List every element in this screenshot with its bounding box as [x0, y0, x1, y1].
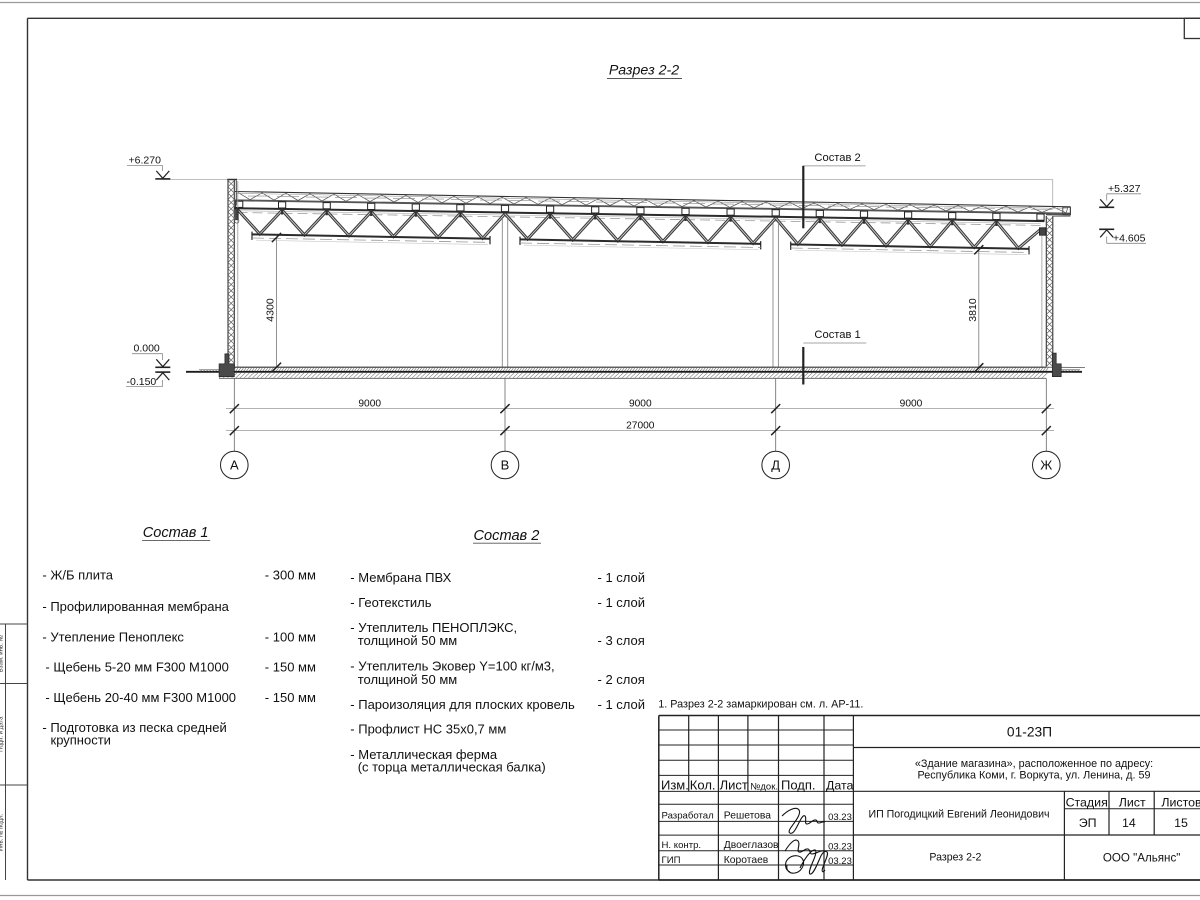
- svg-text:03.23: 03.23: [828, 841, 852, 852]
- svg-text:ИП Погодицкий Евгений Леонидов: ИП Погодицкий Евгений Леонидович: [868, 809, 1049, 821]
- svg-text:27000: 27000: [626, 420, 655, 431]
- svg-text:- Геотекстиль: - Геотекстиль: [350, 595, 431, 610]
- svg-text:4300: 4300: [265, 298, 277, 322]
- svg-text:Взам. инв. №: Взам. инв. №: [0, 635, 5, 672]
- svg-text:14: 14: [1122, 816, 1136, 830]
- svg-text:ООО "Альянс": ООО "Альянс": [1103, 851, 1181, 864]
- svg-text:Республика Коми, г. Воркута, у: Республика Коми, г. Воркута, ул. Ленина,…: [918, 769, 1151, 781]
- svg-text:Разрез 2-2: Разрез 2-2: [929, 851, 981, 863]
- svg-text:Состав 1: Состав 1: [814, 329, 860, 341]
- svg-text:15: 15: [1174, 816, 1188, 830]
- svg-text:0.000: 0.000: [134, 343, 160, 355]
- svg-text:- 1 слой: - 1 слой: [598, 570, 646, 585]
- svg-text:(с торца металлическая балка): (с торца металлическая балка): [358, 760, 546, 775]
- svg-text:толщиной 50 мм: толщиной 50 мм: [358, 633, 458, 648]
- svg-text:- 150 мм: - 150 мм: [265, 660, 316, 675]
- svg-text:Д: Д: [771, 458, 780, 473]
- svg-text:- 3 слоя: - 3 слоя: [598, 633, 645, 648]
- svg-text:Кол.: Кол.: [690, 778, 716, 793]
- svg-text:А: А: [230, 458, 239, 473]
- svg-text:+5.327: +5.327: [1108, 183, 1141, 195]
- svg-text:Состав 2: Состав 2: [474, 528, 540, 544]
- svg-text:Состав 2: Состав 2: [814, 152, 860, 164]
- svg-text:- Щебень 5-20 мм F300 М1000: - Щебень 5-20 мм F300 М1000: [45, 660, 228, 675]
- svg-text:- 150 мм: - 150 мм: [265, 690, 316, 705]
- svg-text:Инв. № подл.: Инв. № подл.: [0, 813, 5, 851]
- svg-text:Дата: Дата: [826, 779, 854, 793]
- svg-text:-0.150: -0.150: [127, 376, 157, 388]
- svg-text:- Профилированная мембрана: - Профилированная мембрана: [42, 599, 229, 614]
- svg-text:Разработал: Разработал: [662, 811, 714, 822]
- svg-text:- Профлист НС 35х0,7 мм: - Профлист НС 35х0,7 мм: [350, 721, 506, 736]
- svg-text:Стадия: Стадия: [1066, 795, 1108, 809]
- svg-text:9000: 9000: [358, 398, 381, 409]
- svg-text:9000: 9000: [629, 398, 652, 409]
- svg-text:- 2 слоя: - 2 слоя: [598, 672, 645, 687]
- svg-text:03.23: 03.23: [828, 812, 852, 823]
- svg-text:Ж: Ж: [1040, 458, 1052, 473]
- svg-text:Решетова: Решетова: [724, 811, 771, 822]
- svg-text:+4.605: +4.605: [1113, 232, 1146, 244]
- svg-text:- Утепление Пеноплекс: - Утепление Пеноплекс: [42, 629, 184, 644]
- svg-text:ЭП: ЭП: [1079, 816, 1097, 830]
- svg-text:Листов: Листов: [1161, 795, 1200, 809]
- svg-text:Разрез 2-2: Разрез 2-2: [609, 63, 679, 79]
- svg-text:1. Разрез 2-2 замаркирован см.: 1. Разрез 2-2 замаркирован см. л. АР-11.: [658, 699, 863, 711]
- svg-text:- Ж/Б плита: - Ж/Б плита: [42, 568, 113, 583]
- svg-text:9000: 9000: [900, 398, 923, 409]
- svg-text:Изм.: Изм.: [661, 778, 689, 793]
- svg-text:№док.: №док.: [750, 781, 778, 792]
- svg-text:толщиной 50 мм: толщиной 50 мм: [358, 672, 458, 687]
- svg-text:Н. контр.: Н. контр.: [662, 840, 702, 851]
- svg-text:Лист: Лист: [1119, 795, 1146, 809]
- svg-text:- Щебень 20-40 мм F300 М1000: - Щебень 20-40 мм F300 М1000: [45, 690, 236, 705]
- svg-text:3810: 3810: [967, 298, 979, 322]
- svg-text:- 1 слой: - 1 слой: [598, 697, 646, 712]
- svg-text:Лист: Лист: [720, 778, 748, 793]
- svg-text:- 300 мм: - 300 мм: [265, 568, 316, 583]
- svg-text:В: В: [501, 458, 510, 473]
- svg-text:Коротаев: Коротаев: [724, 855, 769, 866]
- svg-text:- 100 мм: - 100 мм: [265, 629, 316, 644]
- svg-text:+6.270: +6.270: [129, 154, 162, 166]
- svg-text:- Пароизоляция для плоских кро: - Пароизоляция для плоских кровель: [350, 697, 575, 712]
- svg-text:ГИП: ГИП: [662, 855, 681, 866]
- svg-text:Подп. и дата: Подп. и дата: [0, 716, 5, 752]
- svg-text:крупности: крупности: [51, 732, 111, 747]
- svg-text:- 1 слой: - 1 слой: [598, 595, 646, 610]
- svg-text:03.23: 03.23: [828, 856, 852, 867]
- svg-text:Двоеглазов: Двоеглазов: [724, 840, 779, 851]
- svg-text:Подп.: Подп.: [781, 778, 816, 793]
- svg-text:«Здание магазина», расположенн: «Здание магазина», расположенное по адре…: [915, 758, 1153, 770]
- svg-text:- Мембрана ПВХ: - Мембрана ПВХ: [350, 570, 451, 585]
- svg-text:Состав 1: Состав 1: [143, 525, 209, 541]
- svg-text:01-23П: 01-23П: [1007, 725, 1052, 740]
